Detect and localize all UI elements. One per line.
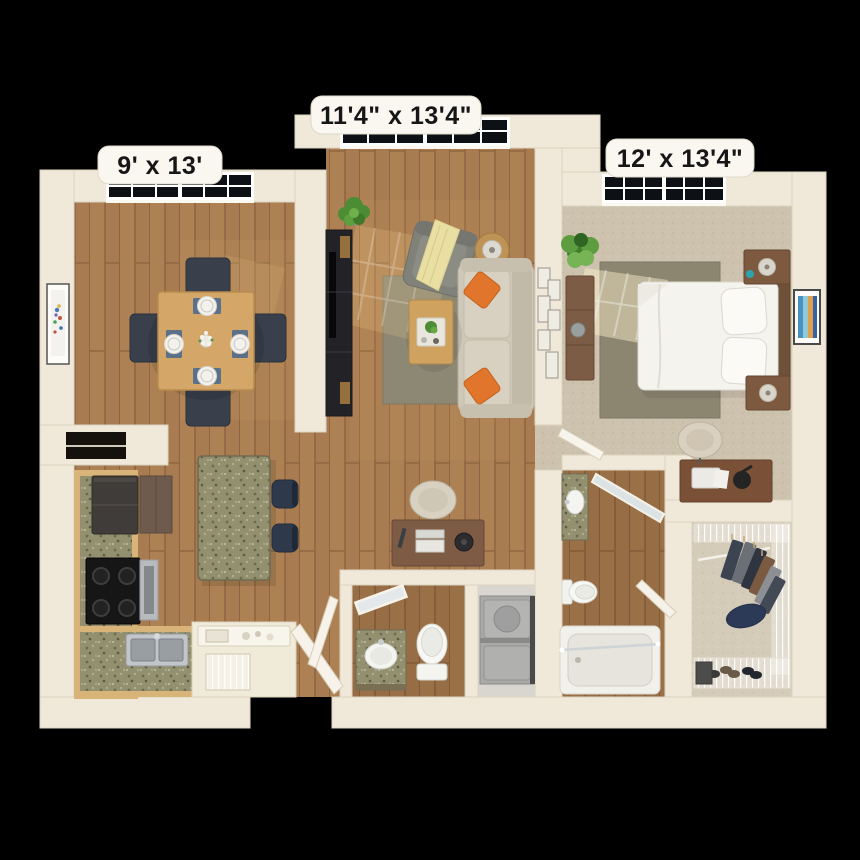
dresser <box>566 276 594 380</box>
sofa <box>458 258 534 418</box>
bedroom-dimension-text: 12' x 13'4" <box>617 145 744 173</box>
wall-dining-living-divider <box>295 170 326 432</box>
laundry-closet-fixtures <box>480 596 535 684</box>
wall-bathroom-laundry <box>465 585 478 697</box>
wall-bathroom-top <box>340 570 535 585</box>
bedroom-desk <box>680 460 772 502</box>
wall-living-bedroom-corner <box>562 148 600 174</box>
teal-accent <box>746 270 754 278</box>
bedroom-doorway-floor <box>535 425 562 470</box>
wire-rack <box>206 654 250 690</box>
living-desk-chair <box>410 481 456 519</box>
wall-ensuite-left <box>535 470 562 697</box>
coffee-table <box>406 300 462 372</box>
nightstand-bottom <box>746 376 790 410</box>
nightstand-top <box>744 250 790 284</box>
wall-bottom-right <box>332 697 826 728</box>
bedroom-wall-art <box>794 290 820 344</box>
floor-plan-canvas: 9' x 13' 11'4" x 13'4" 12' x 13'4" <box>0 0 860 860</box>
bathtub <box>560 626 661 694</box>
refrigerator <box>92 476 138 534</box>
media-console <box>326 230 352 416</box>
laptop-keyboard <box>416 540 444 552</box>
wall-bedroom-ensuite <box>562 455 665 470</box>
living-desk <box>392 520 484 566</box>
dining-wall-art <box>47 284 69 364</box>
black-desk-lamp <box>733 471 751 489</box>
peninsula-counter <box>192 622 296 697</box>
bedroom-window <box>602 174 726 206</box>
bathroom-vanity <box>356 630 406 690</box>
wall-bottom-left <box>40 697 250 728</box>
dining-dimension-text: 9' x 13' <box>117 152 202 180</box>
upper-cabinet <box>140 476 172 533</box>
wall-bathroom-left <box>340 585 352 697</box>
storage-box <box>696 662 712 684</box>
wall-closet-top <box>665 500 792 522</box>
dining-dimension-label: 9' x 13' <box>98 146 222 184</box>
wall-right <box>792 172 826 728</box>
laptop-screen <box>416 530 444 538</box>
toilet <box>417 624 447 680</box>
tv-screen <box>329 252 336 338</box>
kitchen-island <box>198 456 276 586</box>
stove-cooktop <box>86 558 140 624</box>
bedroom-dimension-label: 12' x 13'4" <box>606 139 754 177</box>
ensuite-vanity <box>562 474 588 540</box>
oven-panel <box>140 560 158 620</box>
pillow <box>720 287 767 336</box>
dresser-lamp <box>571 323 585 337</box>
kitchen-sink <box>126 633 188 666</box>
ensuite-toilet <box>562 580 597 604</box>
living-dimension-text: 11'4" x 13'4" <box>320 102 472 130</box>
washer-door <box>494 606 520 632</box>
pantry-niche <box>66 432 126 459</box>
floor-plan: 9' x 13' 11'4" x 13'4" 12' x 13'4" <box>0 0 860 860</box>
living-dimension-label: 11'4" x 13'4" <box>311 96 481 134</box>
